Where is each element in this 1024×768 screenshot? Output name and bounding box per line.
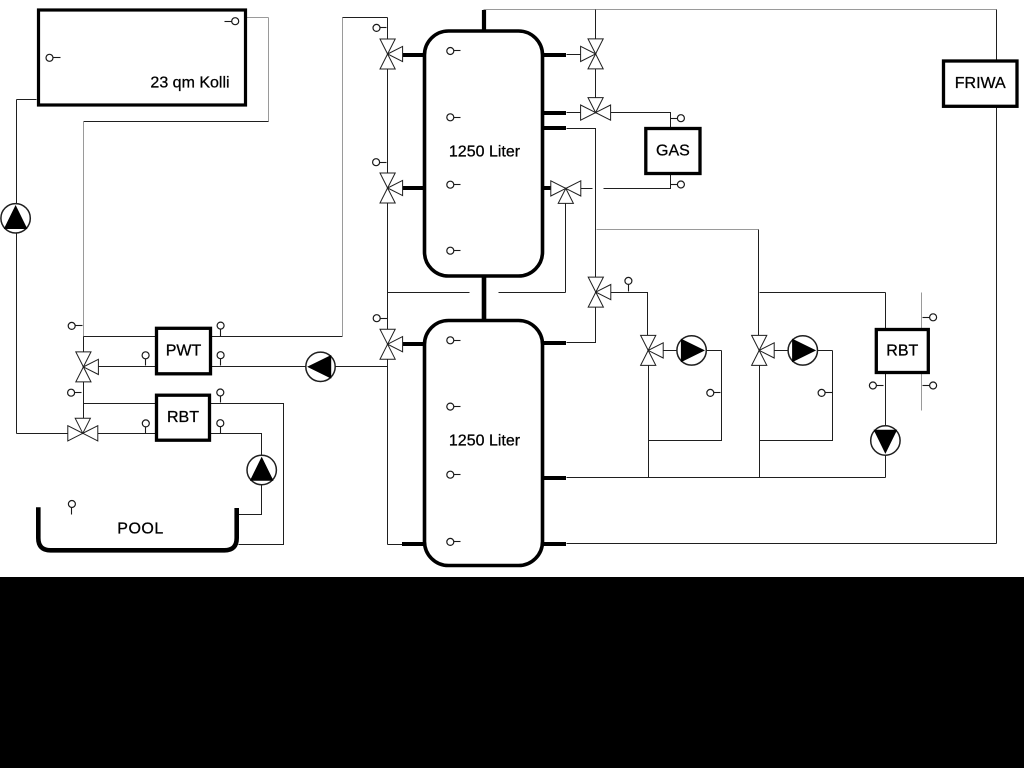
svg-text:RBT: RBT <box>886 343 918 360</box>
svg-text:1250 Liter: 1250 Liter <box>449 433 521 450</box>
svg-text:1250 Liter: 1250 Liter <box>449 144 521 161</box>
svg-text:POOL: POOL <box>117 521 163 538</box>
svg-text:RBT: RBT <box>167 409 199 426</box>
svg-text:PWT: PWT <box>166 343 202 360</box>
svg-text:23 qm Kolli: 23 qm Kolli <box>150 75 229 92</box>
svg-text:GAS: GAS <box>656 143 690 160</box>
svg-text:FRIWA: FRIWA <box>955 75 1006 92</box>
